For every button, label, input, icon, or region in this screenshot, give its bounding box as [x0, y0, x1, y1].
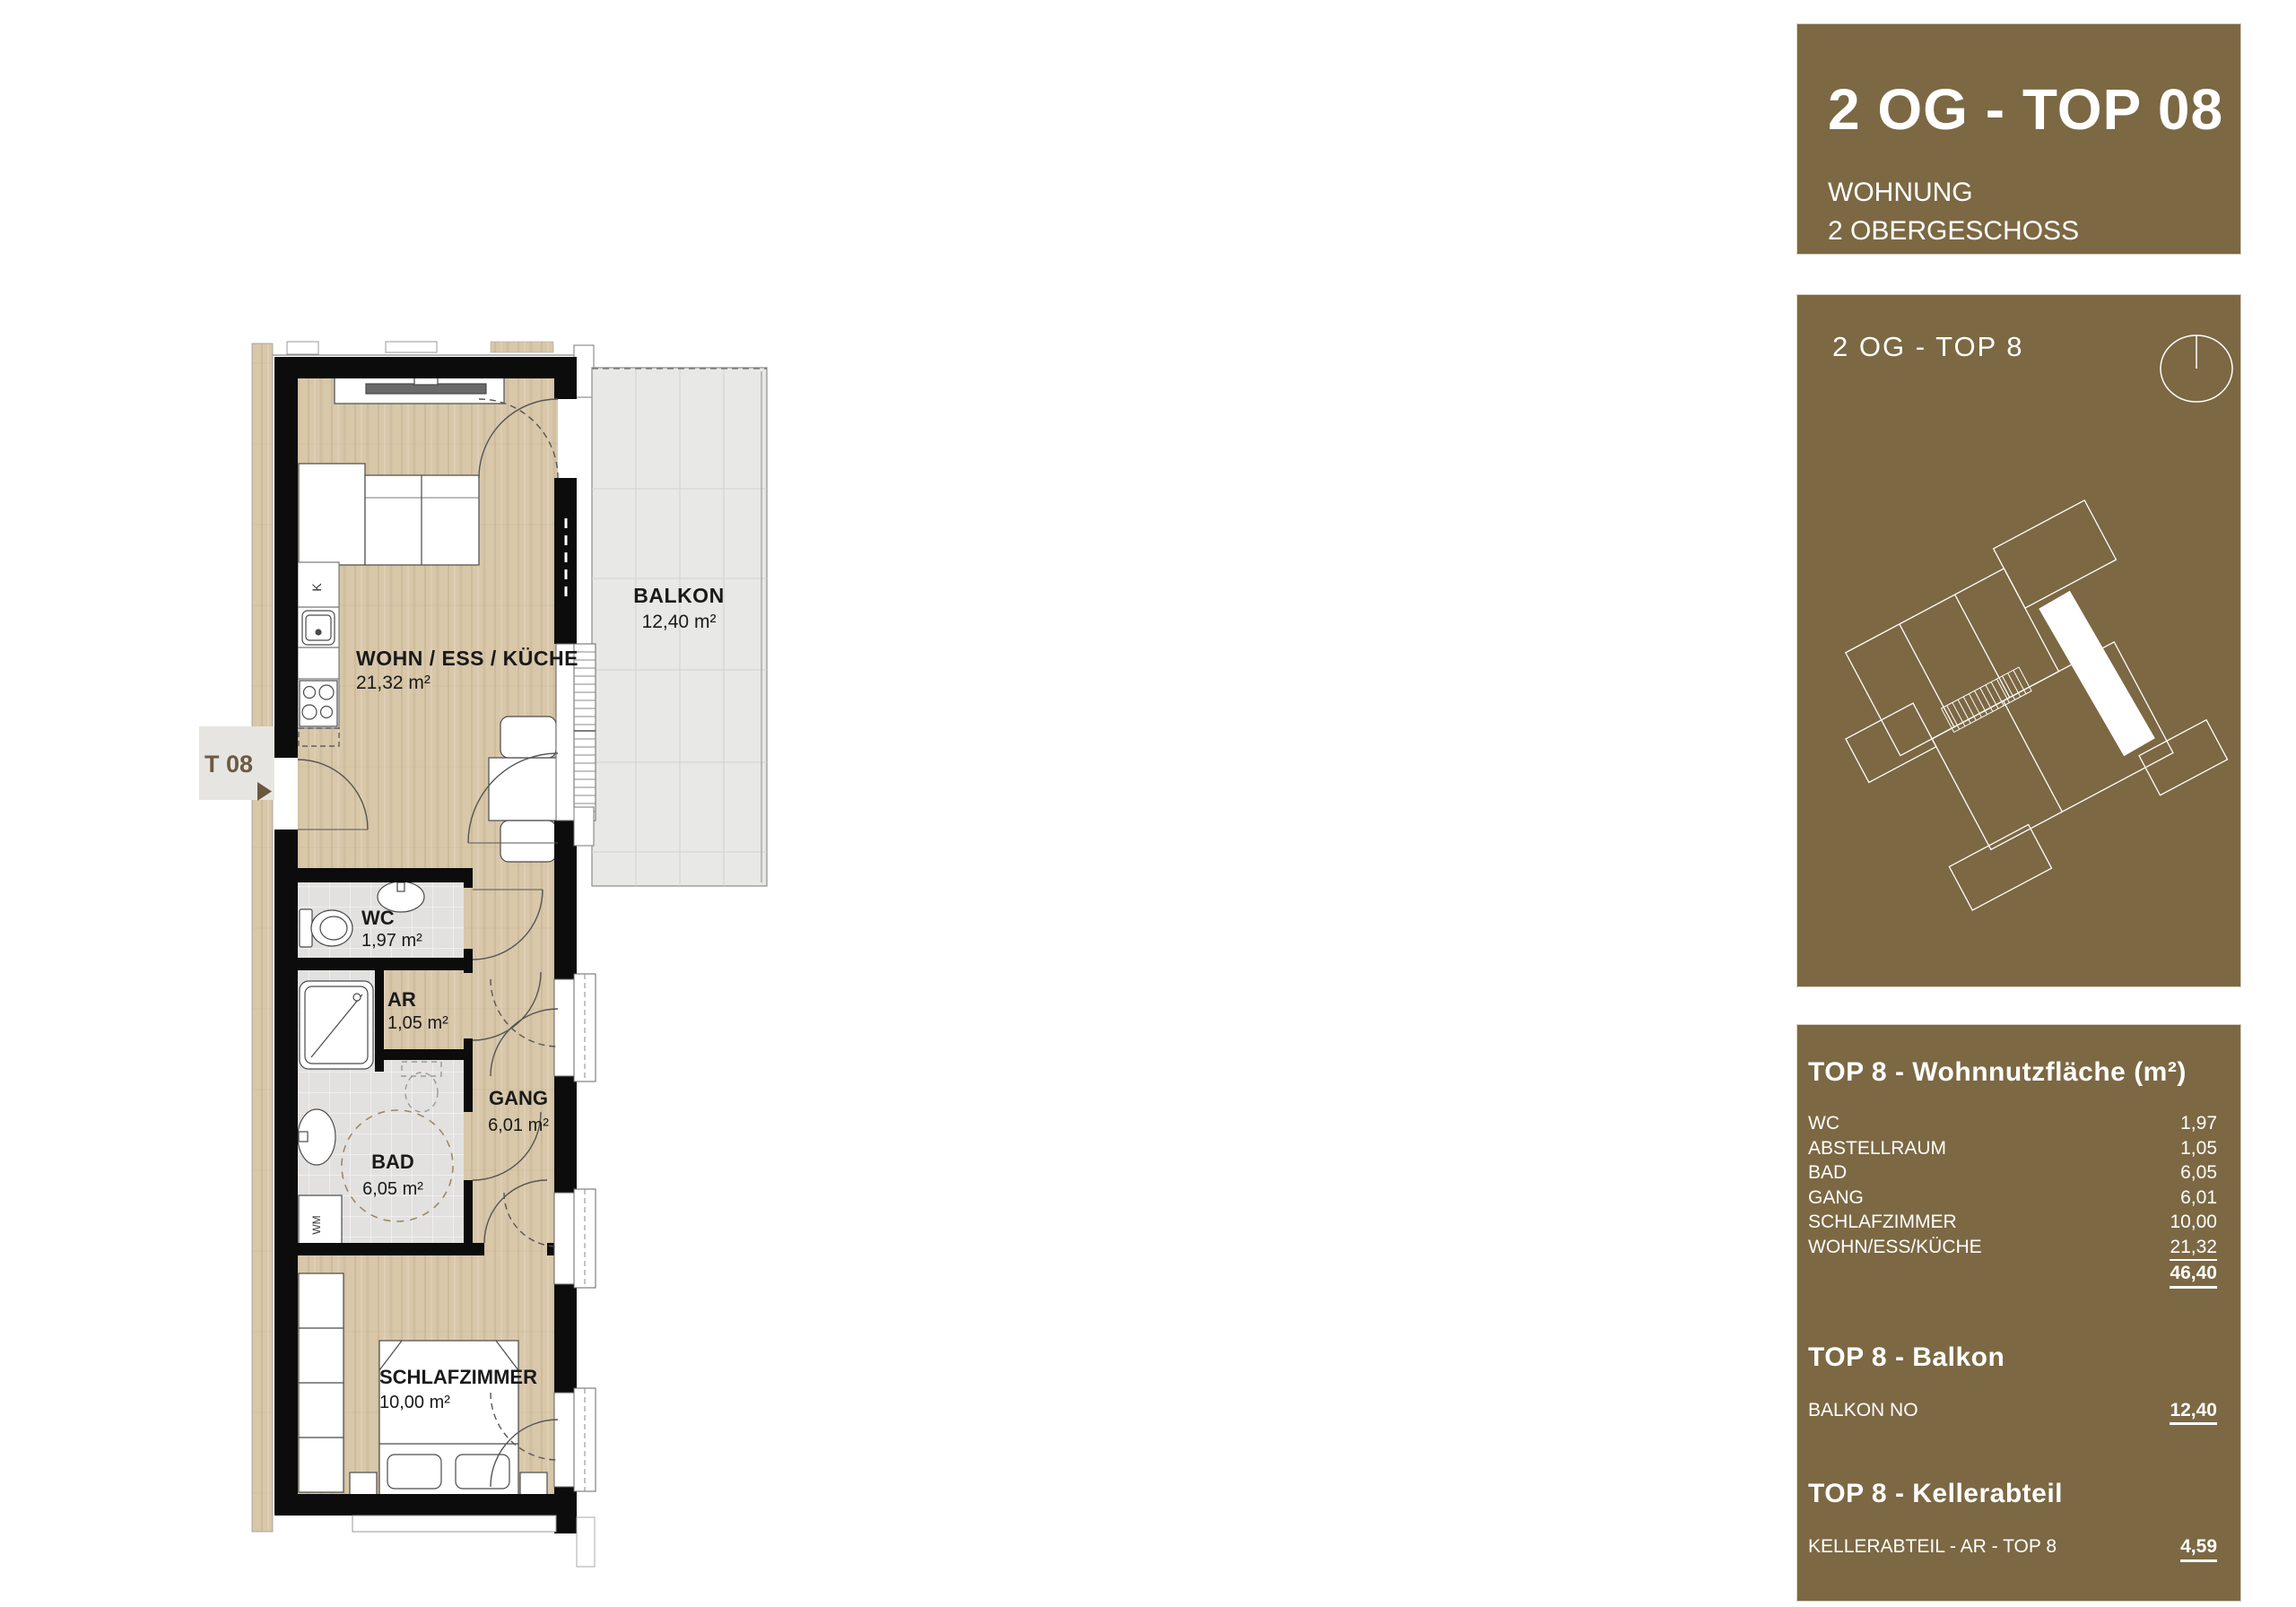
- schlafzimmer-area: 10,00 m²: [379, 1393, 450, 1412]
- cooktop-icon: [300, 681, 337, 726]
- wohn-name: WOHN / ESS / KÜCHE: [356, 647, 578, 670]
- bedroom-french-window: [554, 1388, 596, 1491]
- row-value: 12,40: [2170, 1398, 2217, 1426]
- balcony-area: 12,40 m²: [642, 612, 717, 632]
- north-compass-icon: [2161, 335, 2232, 402]
- table-row: SCHLAFZIMMER 10,00: [1808, 1210, 2217, 1235]
- balcony-name: BALKON: [633, 584, 724, 607]
- ar-name: AR: [387, 988, 416, 1011]
- sheet-subtitle: WOHNUNG 2 OBERGESCHOSS: [1828, 173, 2079, 250]
- row-value: 1,05: [2180, 1136, 2217, 1161]
- wardrobe: [299, 1273, 344, 1492]
- area-table-panel: TOP 8 - Wohnnutzfläche (m²) WC 1,97 ABST…: [1796, 1024, 2241, 1602]
- nightstand-left: [350, 1472, 377, 1495]
- wm-label: WM: [310, 1215, 323, 1234]
- balkon-heading: TOP 8 - Balkon: [1808, 1289, 2217, 1398]
- row-value: 4,59: [2180, 1534, 2217, 1562]
- table-heading: TOP 8 - Wohnnutzfläche (m²): [1808, 1025, 2217, 1111]
- sink-icon: [302, 611, 335, 645]
- sheet-title: 2 OG - TOP 08: [1828, 76, 2223, 143]
- row-label: BAD: [1808, 1160, 1847, 1186]
- row-label: WOHN/ESS/KÜCHE: [1808, 1235, 1982, 1260]
- gang-french-window: [554, 974, 596, 1081]
- keller-row: KELLERABTEIL - AR - TOP 8 4,59: [1808, 1534, 2217, 1562]
- entry-label: T 08: [204, 751, 253, 777]
- row-value: 6,05: [2180, 1160, 2217, 1186]
- row-value: 21,32: [2170, 1235, 2217, 1262]
- sofa: [299, 464, 479, 565]
- wc-name: WC: [361, 907, 395, 929]
- row-value: 6,01: [2180, 1186, 2217, 1211]
- row-value: 10,00: [2170, 1210, 2217, 1235]
- stairs-hatch: [1941, 667, 2031, 732]
- row-label: GANG: [1808, 1186, 1864, 1211]
- stairwell-strip: [252, 343, 273, 1532]
- area-table: WC 1,97 ABSTELLRAUM 1,05 BAD 6,05 GANG 6…: [1808, 1111, 2217, 1289]
- table-total-row: 46,40: [1808, 1261, 2217, 1289]
- gang-name: GANG: [489, 1087, 548, 1109]
- row-label: SCHLAFZIMMER: [1808, 1210, 1957, 1235]
- total-value: 46,40: [2170, 1261, 2217, 1289]
- bed: [379, 1341, 518, 1495]
- table-row: WOHN/ESS/KÜCHE 21,32: [1808, 1235, 2217, 1262]
- gang-window: [554, 1189, 596, 1288]
- row-label: KELLERABTEIL - AR - TOP 8: [1808, 1534, 2057, 1559]
- bad-sink-icon: [298, 1109, 335, 1165]
- bad-area: 6,05 m²: [362, 1179, 423, 1199]
- siteplan-drawing: [1797, 295, 2240, 986]
- building-outlines: [1799, 499, 2233, 925]
- gang-area: 6,01 m²: [488, 1116, 549, 1135]
- table-row: BAD 6,05: [1808, 1160, 2217, 1186]
- toilet-icon: [300, 909, 352, 947]
- bad-name: BAD: [371, 1151, 414, 1173]
- washing-machine: WM: [299, 1195, 342, 1251]
- row-value: 1,97: [2180, 1111, 2217, 1136]
- keller-heading: TOP 8 - Kellerabteil: [1808, 1425, 2217, 1534]
- subtitle-line-2: 2 OBERGESCHOSS: [1828, 212, 2079, 250]
- title-panel: 2 OG - TOP 08 WOHNUNG 2 OBERGESCHOSS: [1796, 23, 2241, 255]
- floor-plan: BALKON 12,40 m² T 08: [0, 0, 906, 1607]
- row-label: ABSTELLRAUM: [1808, 1136, 1946, 1161]
- table-row: WC 1,97: [1808, 1111, 2217, 1136]
- schlafzimmer-name: SCHLAFZIMMER: [379, 1366, 537, 1388]
- subtitle-line-1: WOHNUNG: [1828, 173, 2079, 212]
- wc-area: 1,97 m²: [361, 931, 422, 951]
- ar-area: 1,05 m²: [387, 1013, 448, 1033]
- balcony: BALKON 12,40 m²: [592, 368, 767, 886]
- living-window: [556, 644, 596, 821]
- kitchen-counter: K: [298, 562, 339, 746]
- floorplan-sheet: BALKON 12,40 m² T 08: [0, 0, 2296, 1607]
- balkon-row: BALKON NO 12,40: [1808, 1398, 2217, 1426]
- shower-icon: [300, 981, 373, 1069]
- highlighted-unit: [2039, 591, 2155, 757]
- row-label: BALKON NO: [1808, 1398, 1918, 1423]
- sideboard: [335, 375, 504, 404]
- table-row: GANG 6,01: [1808, 1186, 2217, 1211]
- wohn-area: 21,32 m²: [356, 673, 430, 693]
- siteplan-panel: 2 OG - TOP 8: [1796, 294, 2241, 987]
- kitchen-label: K: [309, 583, 324, 592]
- table-row: ABSTELLRAUM 1,05: [1808, 1136, 2217, 1161]
- row-label: WC: [1808, 1111, 1839, 1136]
- nightstand-right: [520, 1472, 547, 1495]
